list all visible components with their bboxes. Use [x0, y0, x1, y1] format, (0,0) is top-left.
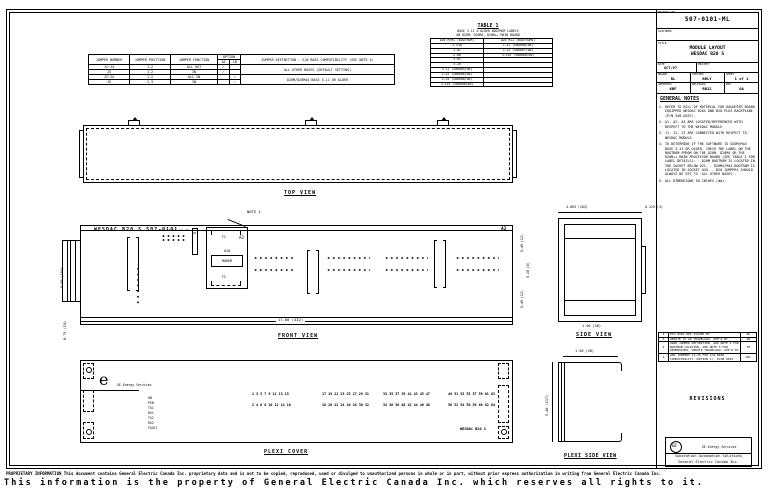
terminal-numbers-g3-even: 34 36 38 40 42 44 46 48: [383, 404, 430, 407]
plexi-corner-bracket: [83, 390, 94, 412]
front-view-label: FRONT VIEW: [278, 334, 318, 339]
f2-bracket: [211, 281, 241, 286]
dim-front-r2: 0.28 (6): [527, 262, 530, 278]
drawing-no-value: 507-0101-ML: [656, 17, 759, 23]
cell: [484, 82, 553, 87]
plexi-corner-bracket: [498, 363, 509, 379]
customer-label: CUSTOMER: [658, 30, 671, 33]
jumper-cluster-labels: J1 J2 J3 J4 J5: [160, 229, 189, 232]
terminal-numbers-g4-even: 50 52 54 56 58 60 62 64: [448, 404, 495, 407]
led-label-on: ON: [148, 397, 152, 400]
cell: IN: [171, 80, 218, 85]
general-notes-list: REFER TO BILL OF MATERIAL FOR DAUGHTER B…: [659, 105, 756, 186]
ge-monogram-letters: GE: [672, 444, 677, 448]
led-label-rx1: RX1: [148, 412, 154, 415]
date-value: OCT/97: [664, 67, 677, 71]
title-line1: MODULE LAYOUT: [656, 47, 759, 52]
drawing-sheet: JUMPER NUMBER JUMPER POSITION JUMPER FUN…: [0, 0, 768, 497]
dim-front-offset: 0.75 (19): [64, 321, 68, 340]
jumper-col-number: JUMPER NUMBER: [89, 55, 130, 65]
title-block-panel: DRAWING NO. 507-0101-ML CUSTOMER TITLE M…: [656, 9, 759, 469]
dim-front-height: 6.50 (164): [61, 267, 65, 288]
table1-subtitle2: ON D20M, D20M4, D20M++ MAIN BOARD: [428, 34, 548, 37]
footer-proprietary-large: This information is the property of Gene…: [4, 479, 704, 488]
company-block: GE GE Energy Services Substation Automat…: [665, 437, 752, 467]
jumper-cluster-pins: [161, 234, 185, 242]
approved-value: KBF: [656, 87, 690, 91]
dim-plexi-side-left: 5.40 (137): [546, 395, 550, 416]
top-view-endcap-left: [79, 130, 84, 178]
table1: D20 M/M+ (BOOTROM) D20 M++ (BOOTROMS) 3.…: [430, 38, 553, 87]
general-note: ALL DIMENSIONS IN INCHES (mm).: [665, 179, 756, 183]
top-view-endcap-right: [512, 130, 517, 178]
mounting-clip: [305, 120, 317, 125]
company-line1: Substation Automation Solutions: [666, 455, 751, 459]
plexi-side-bottom-flange: [564, 441, 618, 442]
side-dim-line: [558, 212, 642, 213]
jumper-col-position: JUMPER POSITION: [130, 55, 171, 65]
revisions-table: 4 ECO 0001-005 ISSUED BY RL 3 UPDATE TO …: [658, 332, 757, 362]
ge-brand-text: GE Energy Services: [702, 446, 737, 449]
led-label-rx2: RX2: [148, 422, 154, 425]
front-view-outline: [80, 225, 513, 325]
led-label-fault: FAULT: [148, 427, 158, 430]
jumper-definition: D20M/D20M44 BASE 3.11 OR OLDER: [241, 75, 395, 85]
table1-row: 3.254 (SB8008/80): [431, 82, 553, 87]
footer-proprietary-small: PROPRIETARY INFORMATION This document co…: [6, 472, 764, 476]
top-view-label: TOP VIEW: [284, 191, 316, 196]
led-label-tx1: TX1: [148, 407, 154, 410]
logo-underline: [81, 390, 139, 391]
revision-row: 1 ADD JUMPERS J1~J5 FOR S/W BASE COMPATI…: [659, 353, 757, 361]
cell: 3.254 (SB8008/80): [431, 82, 484, 87]
terminal-numbers-g4-odd: 49 51 53 55 57 59 61 63: [448, 393, 495, 396]
f2-label: F2: [222, 276, 226, 279]
released-value: RB12: [690, 87, 724, 91]
side-view-label: SIDE VIEW: [576, 333, 612, 338]
rev-by: FP: [741, 342, 757, 354]
rev-label: REV: [726, 83, 731, 86]
rev-value: 0A: [724, 87, 759, 91]
screw-hole: [86, 367, 92, 373]
terminal-numbers-g1-even: 2 4 6 8 10 12 14 16: [252, 404, 291, 407]
component-u5-label: U5: [193, 232, 196, 235]
terminal-dots: [326, 256, 370, 260]
header-connector: [307, 250, 319, 294]
drawn-label: DRAWN: [658, 73, 666, 76]
mounting-clip: [437, 120, 449, 125]
plexi-cover-outline: [80, 360, 513, 443]
rev-by: MJL: [741, 353, 757, 361]
cell: 2-3: [130, 80, 171, 85]
dim-line-left: [70, 240, 71, 302]
revision-row: 2 SWAP JUMPER DEFINITION, ADD NOTE 4 FOR…: [659, 342, 757, 354]
plexi-side-strip-line: [561, 362, 562, 442]
plexi-brand-text: GE Energy Services: [117, 384, 152, 387]
revisions-heading: REVISIONS: [656, 397, 759, 402]
terminal-dots: [384, 256, 428, 260]
plexi-side-dim-vline: [552, 362, 553, 442]
dim-side-bottom: 1.50 (38): [582, 325, 601, 329]
cell: J5: [89, 80, 130, 85]
terminal-dots: [253, 256, 295, 260]
f1-bracket: [211, 230, 241, 235]
plexi-side-hook-top: [616, 362, 622, 371]
terminal-dots: [455, 256, 499, 260]
terminal-numbers-g2-even: 18 20 22 24 26 28 30 32: [322, 404, 369, 407]
terminal-dots: [384, 268, 428, 272]
ge-e-logo-icon: e: [99, 372, 108, 388]
cell: [218, 80, 230, 85]
dim-front-r1: 0.48 (12): [521, 234, 524, 252]
screw-hole: [86, 429, 92, 435]
general-note: A1, A2, A3 ARE LOCATED/REFERENCED WITH R…: [665, 120, 756, 129]
cell: ✓: [229, 80, 241, 85]
jumper-col-definition: JUMPER DEFINITION - S/W BASE COMPATIBILI…: [241, 55, 395, 65]
general-notes-heading: GENERAL NOTES: [660, 97, 699, 102]
modem-box: MODEM: [211, 255, 243, 267]
dim-front-width: 17.00 (432): [276, 318, 305, 322]
project-label: PROJECT: [698, 63, 710, 66]
plexi-side-view-label: PLEXI SIDE VIEW: [564, 454, 617, 459]
terminal-dots: [253, 268, 295, 272]
led-label-psb: PSB: [148, 402, 154, 405]
drawn-value: RL: [656, 77, 690, 81]
plexi-side-dim-line: [563, 356, 618, 357]
a3-label: A3: [239, 236, 244, 240]
screw-hole: [501, 429, 507, 435]
dim-front-r3: 0.48 (12): [521, 290, 524, 308]
title-label: TITLE: [658, 42, 666, 45]
title-line2: WESDAC B20 S: [656, 53, 759, 58]
rev-number: 1: [659, 353, 669, 361]
side-view-rail: [564, 238, 636, 239]
mounting-clip: [128, 120, 140, 125]
f1-label: F1: [222, 236, 226, 239]
sheet-value: 1 of 1: [724, 77, 759, 81]
dim-side-top: 4.063 (103): [566, 206, 588, 209]
plexi-corner-bracket: [498, 385, 509, 423]
side-view-tab: [641, 246, 646, 294]
terminal-numbers-g3-odd: 33 35 37 39 41 43 45 47: [383, 393, 430, 396]
a2-label: A2: [501, 228, 506, 233]
drawing-no-label: DRAWING NO.: [658, 11, 677, 14]
general-note: J1, J2, J3 ARE CONNECTED WITH RESPECT TO…: [665, 131, 756, 140]
edge-connector-line: [67, 240, 68, 302]
jumper-table: JUMPER NUMBER JUMPER POSITION JUMPER FUN…: [88, 54, 395, 85]
terminal-dots: [455, 268, 499, 272]
plexi-side-top-flange: [564, 362, 618, 363]
plexi-side-hook-bottom: [616, 433, 622, 442]
led-label-tx2: TX2: [148, 417, 154, 420]
edge-connector: [62, 240, 81, 302]
side-view-rail: [564, 300, 636, 301]
u10-label: U10: [206, 250, 248, 254]
rev-desc: SWAP JUMPER DEFINITION, ADD NOTE 4 FOR B…: [669, 342, 741, 354]
note1-callout: NOTE 1: [247, 210, 261, 214]
jumper-definition: ALL OTHER BASES (DEFAULT SETTING): [241, 65, 395, 75]
company-line2: General Electric Canada Inc.: [666, 461, 751, 465]
top-view-cover-dashed: [86, 128, 510, 180]
jumper-col-function: JUMPER FUNCTION: [171, 55, 218, 65]
general-note: TO DETERMINE IF THE SOFTWARE IS D20M/M44…: [665, 142, 756, 176]
general-note: REFER TO BILL OF MATERIAL FOR DAUGHTER B…: [665, 105, 756, 118]
via-column: [136, 266, 140, 306]
header-connector: [434, 240, 446, 288]
rev-number: 2: [659, 342, 669, 354]
terminal-numbers-g1-odd: 1 3 5 7 9 11 13 15: [252, 393, 289, 396]
sheet-label: SHEET: [726, 73, 734, 76]
terminal-dots: [326, 268, 370, 272]
terminal-numbers-g2-odd: 17 19 21 23 25 27 29 31: [322, 393, 369, 396]
rev-desc: ADD JUMPERS J1~J5 FOR S/W BASE COMPATIBI…: [669, 353, 741, 361]
plexi-module-name: WESDAC B20 S: [460, 428, 486, 432]
plexi-cover-label: PLEXI COVER: [264, 450, 308, 455]
checked-value: BRLY: [690, 77, 724, 81]
dim-plexi-side-top: 1.50 (38): [575, 350, 594, 354]
edge-connector-line: [75, 240, 76, 302]
